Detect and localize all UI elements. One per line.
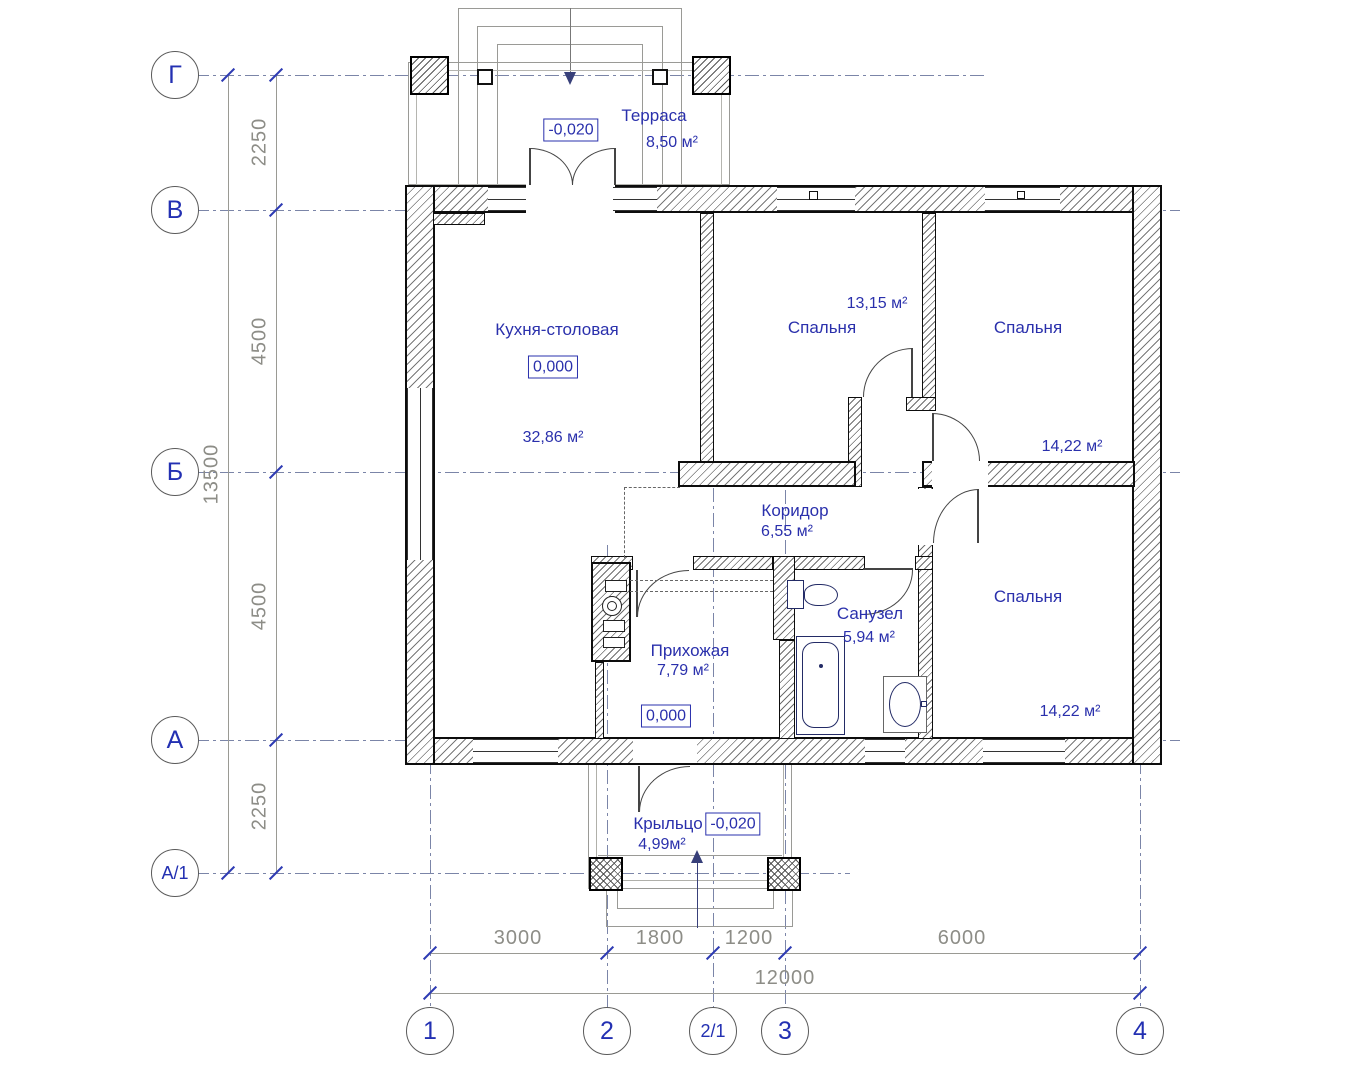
wall-hall-left-thin: [595, 662, 604, 739]
window: [865, 739, 905, 763]
window: [473, 739, 558, 763]
door-leaf: [863, 568, 913, 570]
door-leaf: [636, 570, 638, 617]
window: [983, 739, 1065, 763]
washbasin-bowl: [889, 682, 921, 727]
wall-corridor-top-left: [678, 461, 856, 487]
axis-bubble-21: 2/1: [689, 1007, 737, 1055]
axis-bubble-a1: А/1: [151, 849, 199, 897]
room-area-kitchen: 32,86 м²: [523, 429, 584, 447]
door-leaf: [932, 413, 934, 461]
door-arc: [933, 489, 979, 543]
dimension-line-bottom-total: [430, 993, 1140, 994]
room-label-terrace: Терраса: [621, 106, 686, 126]
dim-text: 2250: [249, 118, 272, 167]
wall-stub: [906, 397, 936, 411]
wall-hall-top-right: [693, 556, 773, 570]
axis-bubble-2: 2: [583, 1007, 631, 1055]
wall-bathroom-top: [793, 556, 865, 570]
door-leaf: [977, 489, 979, 543]
axis-bubble-v: В: [151, 186, 199, 234]
wall-kitchen-bedroom1: [700, 213, 714, 465]
entry-arrow-line: [697, 862, 698, 928]
elevation-badge-kitchen: 0,000: [528, 356, 578, 379]
flue-circle-inner: [607, 601, 617, 611]
dim-text-total: 13500: [201, 444, 224, 505]
door-arc: [637, 570, 689, 617]
dim-text: 3000: [494, 927, 543, 950]
door-arc: [932, 413, 980, 461]
door-leaf: [614, 148, 616, 185]
room-area-terrace: 8,50 м²: [646, 134, 698, 152]
room-label-porch: Крыльцо: [633, 814, 702, 834]
porch-column: [589, 857, 623, 891]
door-arc: [863, 348, 913, 397]
bathtub-inner: [802, 642, 839, 728]
dashed-line: [630, 591, 773, 592]
flue-symbol: [605, 580, 627, 592]
entry-door-opening: [633, 739, 697, 763]
room-area-bathroom: 5,94 м²: [843, 629, 895, 647]
axis-bubble-3: 3: [761, 1007, 809, 1055]
toilet-tank: [787, 580, 804, 609]
room-area-porch: 4,99м²: [638, 836, 685, 854]
dimension-line-left-total: [228, 75, 229, 873]
bathtub-drain: [819, 664, 823, 668]
toilet-bowl: [804, 584, 838, 606]
wall-exterior-right: [1132, 185, 1162, 765]
room-area-bedroom3: 14,22 м²: [1040, 703, 1101, 721]
washbasin-tap: [921, 701, 927, 707]
door-leaf: [638, 766, 640, 812]
room-label-bedroom3: Спальня: [994, 587, 1062, 607]
wall-corner-block: [915, 556, 933, 570]
door-leaf: [529, 148, 531, 185]
window: [488, 187, 528, 211]
axis-bubble-4: 4: [1116, 1007, 1164, 1055]
room-label-hall: Прихожая: [651, 641, 730, 661]
room-area-hall: 7,79 м²: [657, 662, 709, 680]
up-arrow-icon: [691, 850, 703, 863]
axis-bubble-a: А: [151, 716, 199, 764]
wall-kitchen-pier: [433, 213, 485, 225]
bedroom2-door-opening: [932, 461, 988, 487]
terrace-post: [652, 69, 668, 85]
porch-column: [767, 857, 801, 891]
room-label-corridor: Коридор: [761, 501, 828, 521]
elevation-badge-hall: 0,000: [641, 705, 691, 728]
flue-symbol: [603, 637, 625, 648]
room-label-bedroom2: Спальня: [994, 318, 1062, 338]
room-label-bathroom: Санузел: [837, 604, 903, 624]
door-leaf: [911, 348, 913, 397]
bedroom3-door-opening: [918, 489, 933, 545]
terrace-door-opening: [526, 183, 615, 215]
flue-symbol: [603, 620, 625, 632]
room-label-bedroom1: Спальня: [788, 318, 856, 338]
window: [407, 388, 433, 560]
porch-floor-line: [598, 855, 782, 856]
dim-text: 4500: [249, 317, 272, 366]
wall-bedroom1-bedroom2: [922, 213, 936, 399]
elevation-badge-porch: -0,020: [705, 813, 760, 836]
room-area-bedroom2: 14,22 м²: [1042, 438, 1103, 456]
dim-text: 1200: [725, 927, 774, 950]
porch-steps: [617, 889, 774, 909]
terrace-column: [692, 56, 731, 95]
elevation-badge-terrace: -0,020: [543, 119, 598, 142]
dashed-line: [630, 580, 773, 581]
window: [613, 187, 657, 211]
window-center-mark: [1017, 191, 1025, 199]
axis-bubble-b: Б: [151, 448, 199, 496]
floor-plan-canvas: 2250 4500 4500 2250 13500 3000 1800 1200…: [0, 0, 1350, 1080]
dim-text: 2250: [249, 782, 272, 831]
dimension-line-left-segments: [276, 75, 277, 873]
corridor-boundary-dashed: [624, 487, 680, 488]
wall-bathroom-left-lower: [779, 640, 795, 739]
terrace-column: [410, 56, 449, 95]
dim-text-total: 12000: [755, 967, 816, 990]
room-area-corridor: 6,55 м²: [761, 523, 813, 541]
terrace-post: [477, 69, 493, 85]
dim-text: 1800: [636, 927, 685, 950]
room-label-kitchen: Кухня-столовая: [495, 320, 618, 340]
axis-bubble-1: 1: [406, 1007, 454, 1055]
dim-text: 4500: [249, 582, 272, 631]
corridor-boundary-dashed: [624, 487, 625, 558]
dim-text: 6000: [938, 927, 987, 950]
axis-bubble-g: Г: [151, 51, 199, 99]
window-center-mark: [809, 191, 818, 200]
room-area-bedroom1: 13,15 м²: [847, 295, 908, 313]
